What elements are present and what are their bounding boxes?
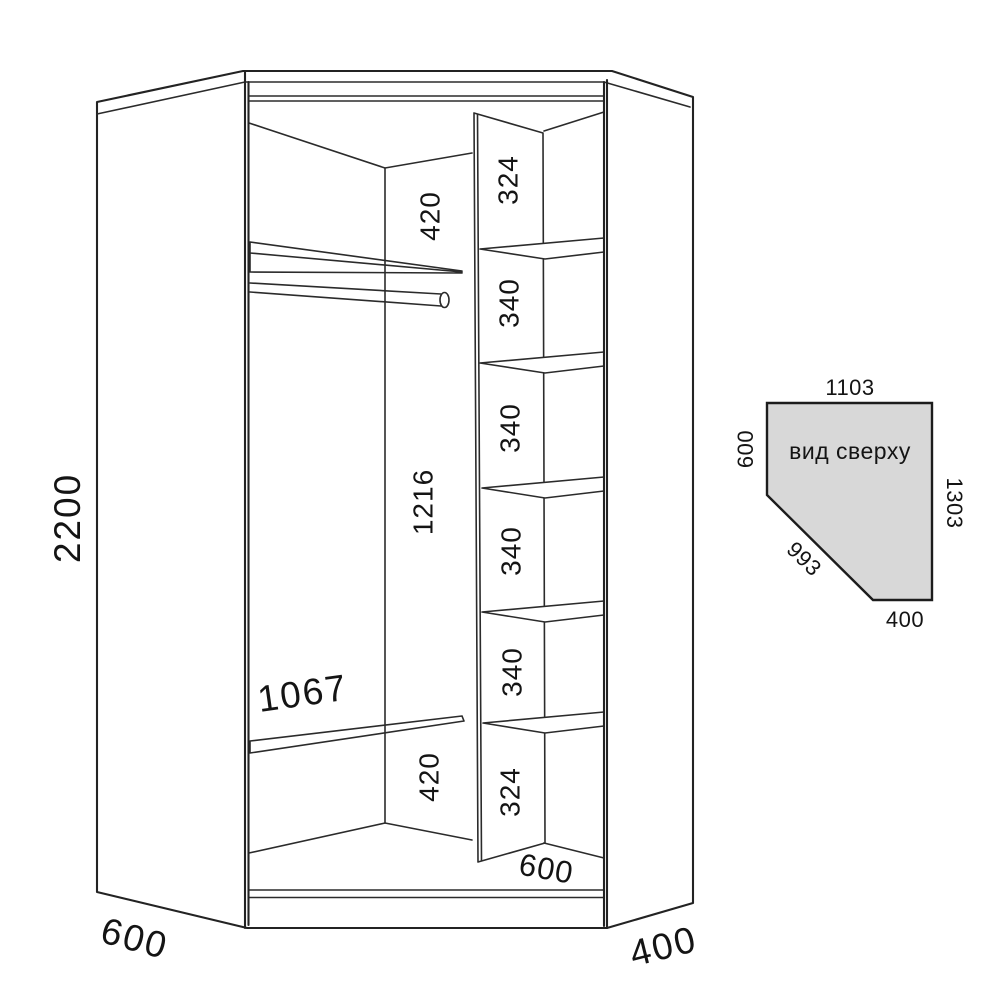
front-left-edge [245,71,249,928]
dim-shelf-length: 1067 [255,667,350,720]
column-shelf-1 [480,238,604,259]
long-shelf-1067 [250,716,464,753]
top-panel-thickness-line [97,82,690,114]
dim-bottom-section: 420 [413,752,444,802]
top-view-outline [767,403,932,600]
dim-column-section-3: 340 [494,403,525,453]
column-shelf-5 [483,712,604,733]
back-wall-top-edges [249,112,604,168]
column-shelf-2 [480,352,604,373]
wardrobe-drawing-svg: 2200 420 1216 1067 420 600 600 400 324 3… [0,0,1000,1000]
top-view-dim-top: 1103 [825,375,874,400]
hanger-board [250,242,462,273]
hanging-rod-end-cap [440,293,449,308]
column-shelf-4 [482,601,604,622]
top-view-dim-left: 600 [733,430,758,468]
dim-left-side-depth: 600 [97,910,173,967]
dim-middle-section: 1216 [407,469,438,535]
top-view-dim-right: 1303 [942,478,967,529]
dim-column-section-5: 340 [496,647,527,697]
dim-top-section: 420 [414,191,445,241]
bottom-deck-edges [249,890,603,898]
dim-column-section-1: 324 [492,155,523,205]
top-track-strip [249,96,603,101]
dim-column-section-2: 340 [493,278,524,328]
column-shelf-3 [482,477,604,498]
dim-column-section-4: 340 [495,526,526,576]
top-view-title: вид сверху [789,438,911,464]
dim-column-section-6: 324 [494,767,525,817]
dim-inner-bottom-width: 600 [516,847,576,891]
technical-drawing-canvas: 2200 420 1216 1067 420 600 600 400 324 3… [0,0,1000,1000]
dim-total-height: 2200 [47,473,88,563]
dim-right-side-depth: 400 [626,918,702,974]
front-right-edge [604,80,607,928]
hanging-rod [250,283,441,306]
top-view-dim-bottom: 400 [886,607,924,632]
